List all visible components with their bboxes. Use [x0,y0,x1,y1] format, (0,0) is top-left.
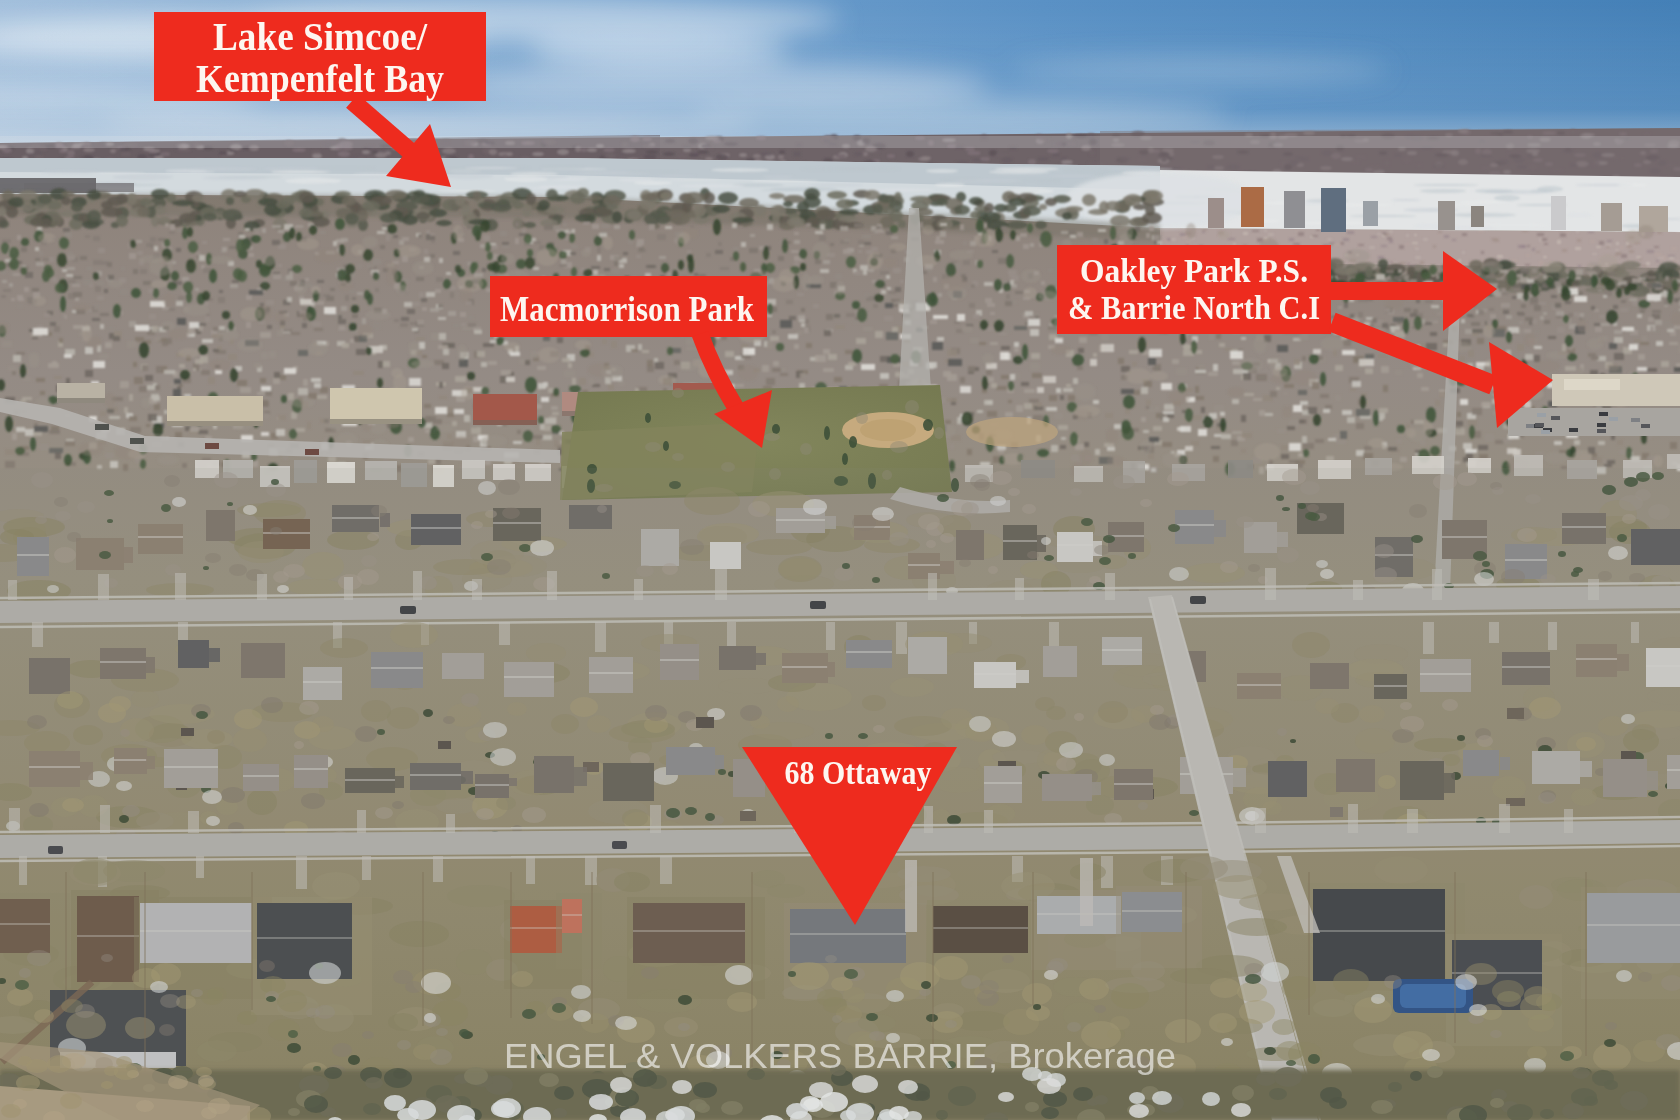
svg-text:& Barrie North C.I: & Barrie North C.I [1068,289,1320,326]
svg-text:ENGEL & VOLKERS BARRIE, Broker: ENGEL & VOLKERS BARRIE, Brokerage [504,1036,1176,1075]
svg-text:Kempenfelt Bay: Kempenfelt Bay [196,56,444,101]
svg-text:68 Ottaway: 68 Ottaway [785,754,932,791]
svg-text:Oakley Park P.S.: Oakley Park P.S. [1080,252,1308,289]
svg-text:Macmorrison Park: Macmorrison Park [500,289,754,329]
svg-text:Lake Simcoe/: Lake Simcoe/ [213,14,428,59]
